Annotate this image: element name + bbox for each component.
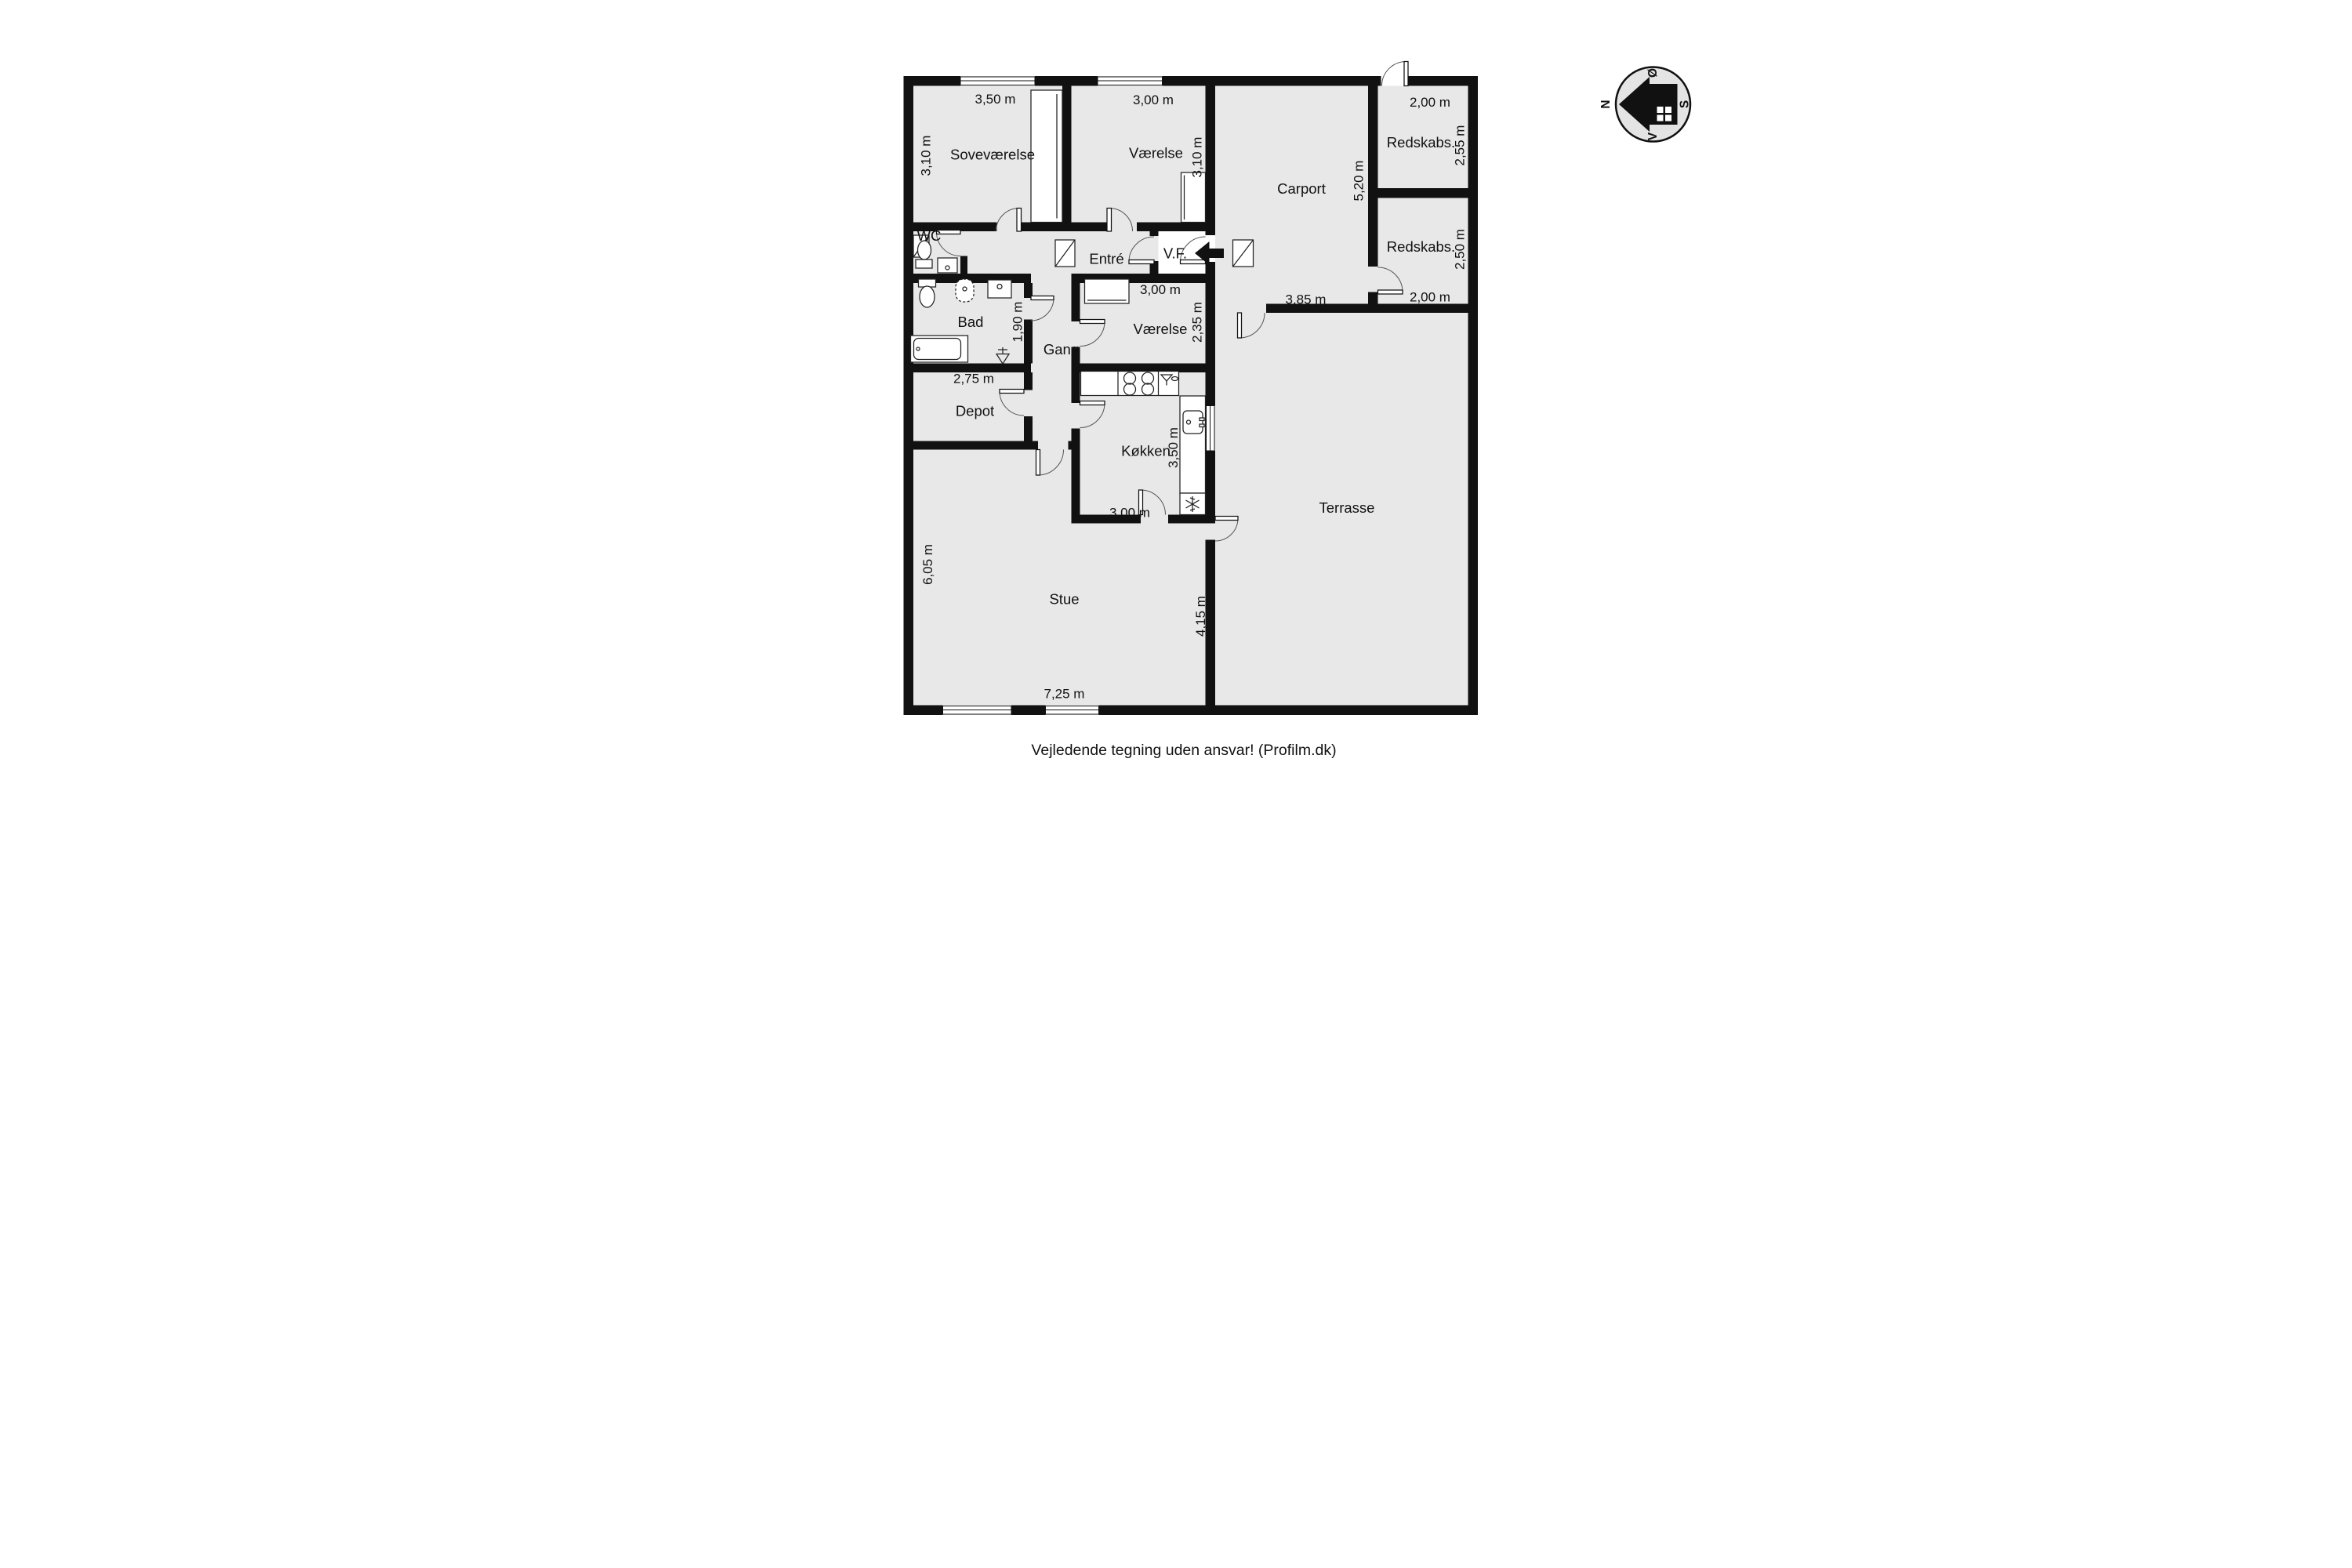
window-koekken (1207, 406, 1215, 452)
dim-sovevaerelse-h: 3,10 m (919, 136, 934, 176)
dim-redskabs-bottom-h: 2,50 m (1453, 229, 1468, 270)
closet-vaerelse-top (1181, 172, 1206, 223)
dim-vaerelse-top-w: 3,00 m (1133, 93, 1174, 107)
closet-vaerelse-mid (1085, 279, 1130, 303)
bad-bidet-icon (956, 279, 974, 302)
window-stue-2 (1046, 706, 1099, 715)
wardrobe-sovevaerelse (1031, 90, 1062, 223)
dim-carport-h: 5,20 m (1352, 161, 1367, 201)
bad-toilet-icon (919, 279, 936, 307)
dim-carport-w: 3,85 m (1286, 292, 1327, 307)
bad-sink-icon (988, 280, 1011, 298)
wc-sink-icon (938, 258, 957, 273)
label-sovevaerelse: Soveværelse (950, 147, 1035, 163)
dim-vaerelse-mid-h: 2,35 m (1190, 302, 1205, 343)
dim-stue-w: 7,25 m (1044, 687, 1085, 702)
compass-north: N (1599, 100, 1613, 108)
dim-redskabs-bottom-w: 2,00 m (1410, 290, 1450, 305)
window-vaerelse-top (1098, 77, 1163, 85)
window-stue-1 (943, 706, 1012, 715)
dim-vaerelse-mid-w: 3,00 m (1140, 282, 1181, 297)
dim-vaerelse-top-h: 3,10 m (1190, 137, 1205, 178)
label-gang: Gang (1044, 341, 1079, 358)
entre-hatch-icon (1055, 240, 1075, 267)
label-redskabs-bottom: Redskabs. (1387, 238, 1455, 255)
compass-east: Ø (1646, 68, 1660, 78)
dim-redskabs-top-w: 2,00 m (1410, 95, 1450, 110)
label-terrasse: Terrasse (1319, 499, 1375, 516)
label-redskabs-top: Redskabs. (1387, 134, 1455, 151)
dim-gang-h: 1,90 m (1011, 302, 1025, 343)
label-vf: V.F. (1163, 245, 1187, 262)
dim-koekken-h: 3,50 m (1166, 427, 1181, 468)
label-wc: WC (917, 227, 942, 244)
footer-disclaimer: Vejledende tegning uden ansvar! (Profilm… (1031, 742, 1336, 759)
dim-koekken-w: 3,00 m (1109, 506, 1150, 521)
dim-redskabs-top-h: 2,55 m (1453, 125, 1468, 166)
label-carport: Carport (1277, 180, 1326, 197)
bad-bathtub-icon (911, 336, 968, 362)
redskabs-door-gap (1381, 76, 1406, 86)
compass-south: S (1679, 100, 1692, 108)
label-stue: Stue (1049, 591, 1079, 608)
compass-west: V (1646, 132, 1660, 140)
dim-sovevaerelse-w: 3,50 m (975, 92, 1016, 107)
carport-hatch-icon (1233, 240, 1254, 267)
dim-stue-h: 6,05 m (920, 544, 935, 585)
window-sovevaerelse (960, 77, 1035, 85)
koekken-freezer-icon (1180, 493, 1206, 515)
floorplan-page: Soveværelse 3,50 m 3,10 m Værelse 3,00 m… (588, 0, 1764, 784)
label-koekken: Køkken (1121, 443, 1171, 459)
label-depot: Depot (956, 403, 994, 419)
label-vaerelse-mid: Værelse (1134, 321, 1188, 337)
dim-terrasse-h: 4,15 m (1193, 596, 1208, 637)
label-vaerelse-top: Værelse (1129, 145, 1183, 162)
floorplan-drawing: Soveværelse 3,50 m 3,10 m Værelse 3,00 m… (588, 0, 1764, 784)
dim-depot-w: 2,75 m (953, 372, 994, 387)
label-entre: Entré (1089, 251, 1123, 267)
label-bad: Bad (958, 314, 984, 330)
koekken-sink-icon (1183, 411, 1204, 434)
compass: N Ø S V (1599, 67, 1692, 142)
